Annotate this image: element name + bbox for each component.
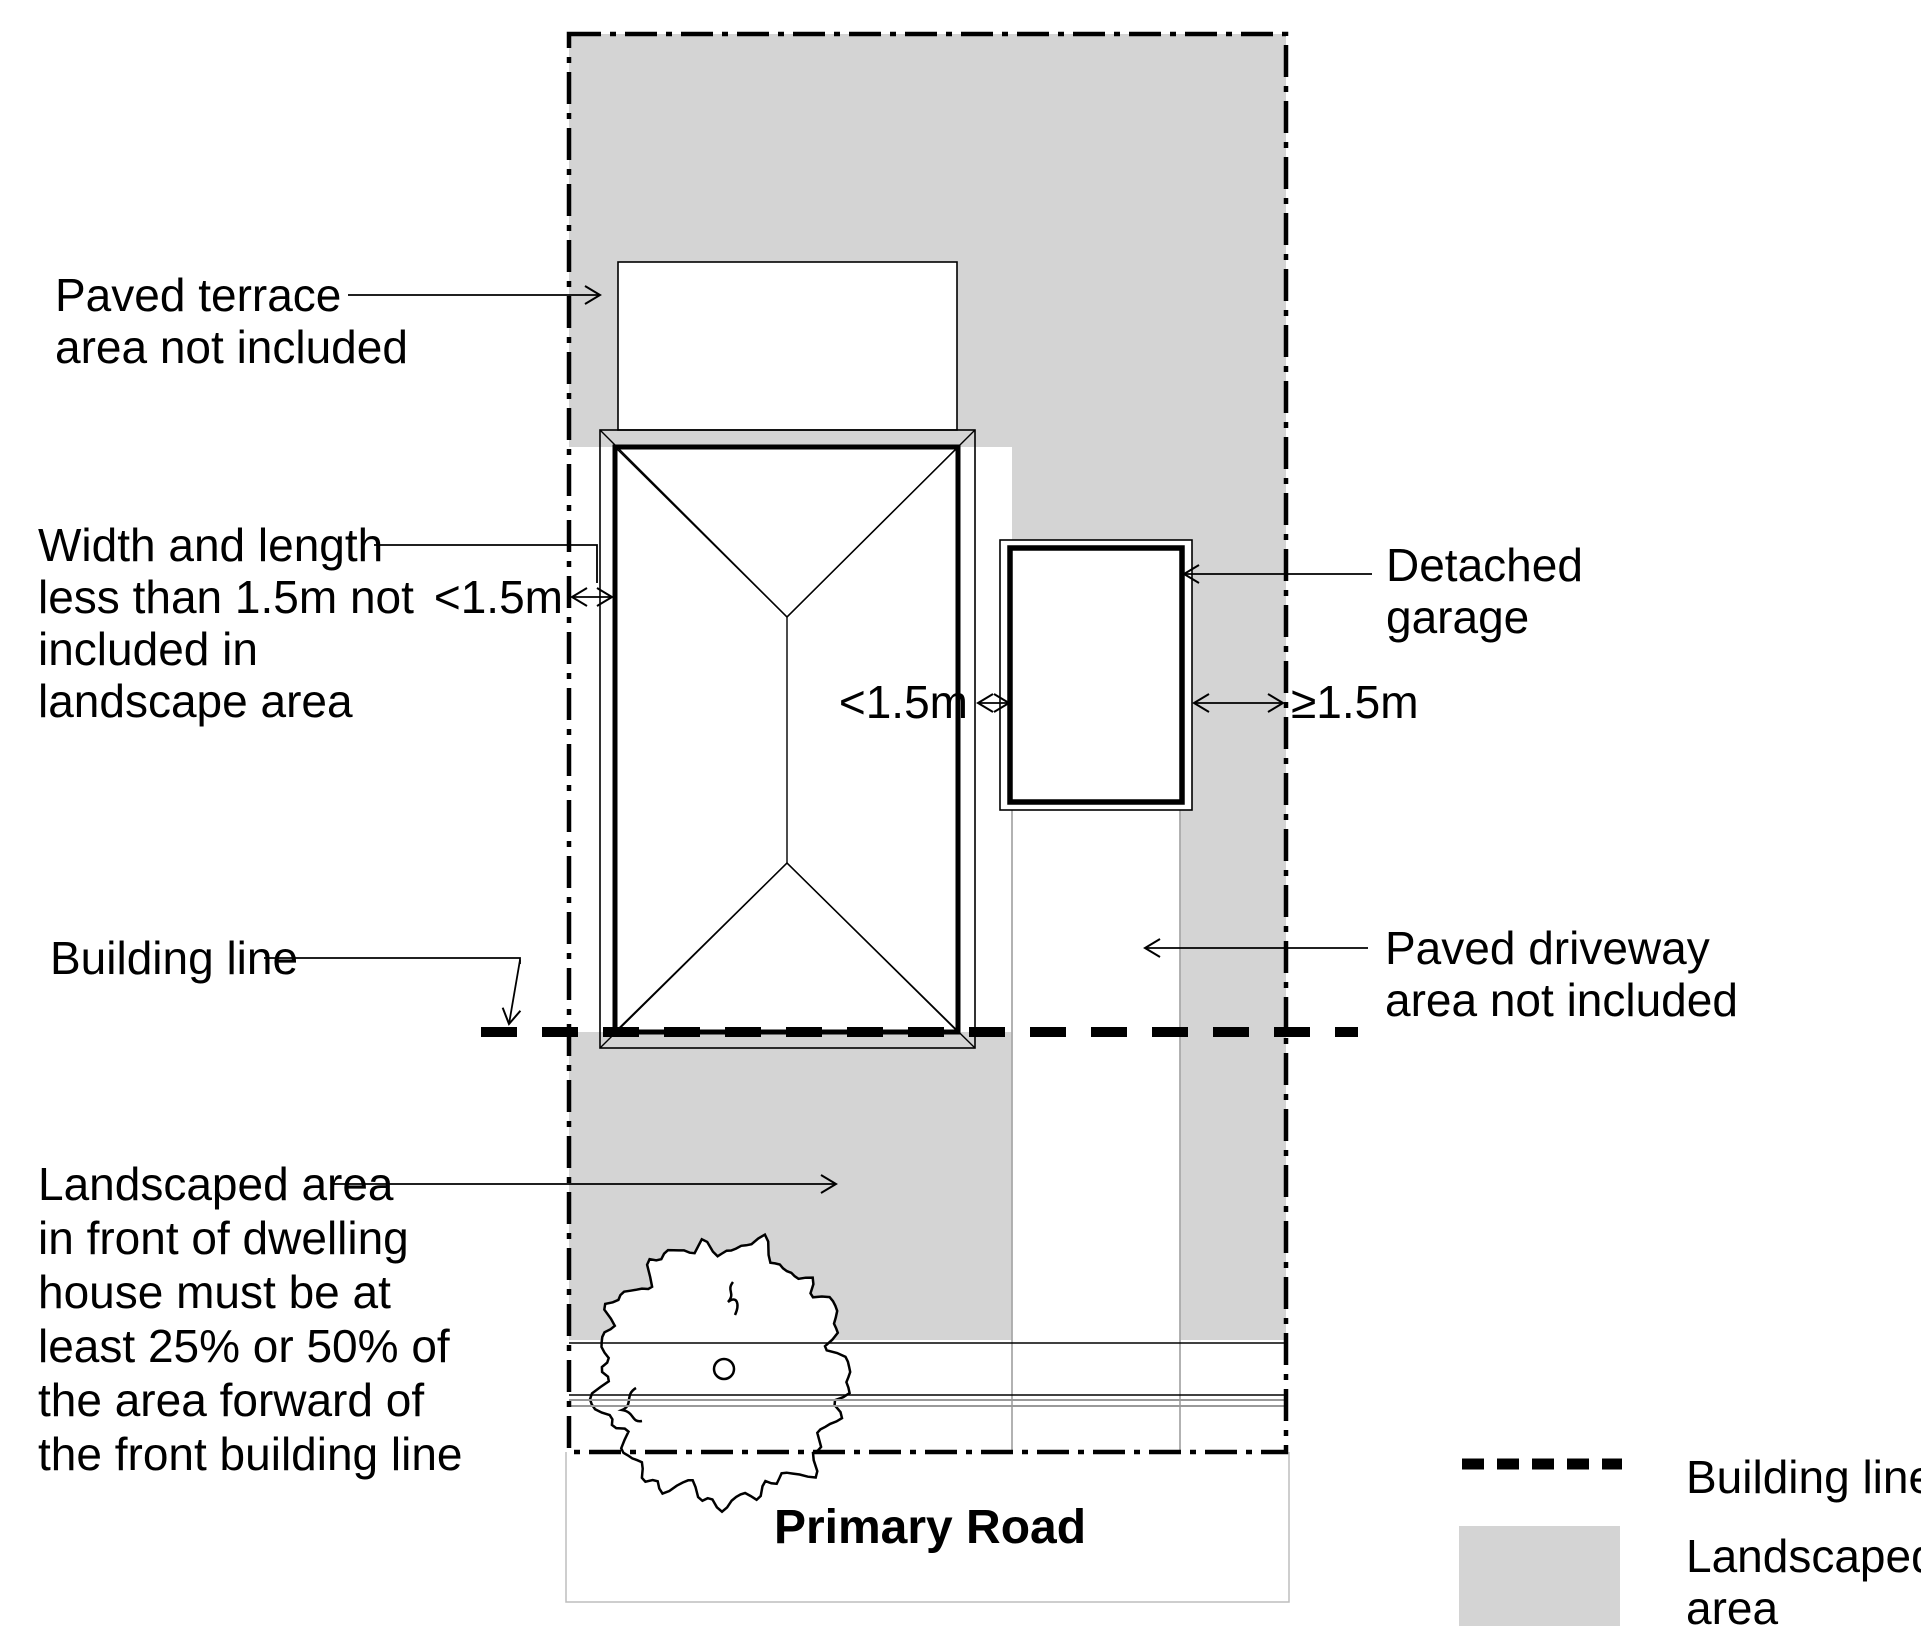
label-paved-terrace-2: area not included xyxy=(55,321,408,373)
label-landscaped-5: the area forward of xyxy=(38,1374,424,1426)
terrace-area-white xyxy=(618,262,957,430)
label-landscaped-3: house must be at xyxy=(38,1266,391,1318)
side-setback-white xyxy=(569,447,600,1032)
label-paved-terrace-1: Paved terrace xyxy=(55,269,341,321)
label-detached-garage-1: Detached xyxy=(1386,539,1583,591)
site-plan-svg: Paved terrace area not included Width an… xyxy=(0,0,1921,1631)
label-width-length-3: included in xyxy=(38,623,258,675)
label-dim-right: ≥1.5m xyxy=(1291,676,1419,728)
legend-landscaped-label-1: Landscaped xyxy=(1686,1530,1921,1582)
building-line-leader xyxy=(264,958,520,964)
label-paved-driveway-1: Paved driveway xyxy=(1385,922,1710,974)
legend-landscaped-label-2: area xyxy=(1686,1582,1778,1631)
tree-trunk xyxy=(714,1359,734,1379)
legend-building-line-label: Building line xyxy=(1686,1451,1921,1503)
label-landscaped-2: in front of dwelling xyxy=(38,1212,409,1264)
building-line-leader-arrow xyxy=(509,960,520,1024)
legend: Building line Landscaped area xyxy=(1459,1451,1921,1631)
site-plan-diagram: Paved terrace area not included Width an… xyxy=(0,0,1921,1631)
garage-footprint-white xyxy=(1000,540,1192,810)
label-width-length-4: landscape area xyxy=(38,675,353,727)
label-landscaped-4: least 25% or 50% of xyxy=(38,1320,450,1372)
label-width-length-2: less than 1.5m not xyxy=(38,571,414,623)
label-dim-mid: <1.5m xyxy=(839,676,968,728)
label-building-line: Building line xyxy=(50,932,298,984)
legend-landscaped-swatch xyxy=(1459,1526,1620,1626)
label-landscaped-1: Landscaped area xyxy=(38,1158,394,1210)
label-dim-left: <1.5m xyxy=(434,571,563,623)
label-primary-road: Primary Road xyxy=(774,1501,1086,1554)
label-paved-driveway-2: area not included xyxy=(1385,974,1738,1026)
label-detached-garage-2: garage xyxy=(1386,591,1529,643)
driveway-white xyxy=(1012,810,1180,1340)
label-width-length-1: Width and length xyxy=(38,519,383,571)
label-landscaped-6: the front building line xyxy=(38,1428,463,1480)
